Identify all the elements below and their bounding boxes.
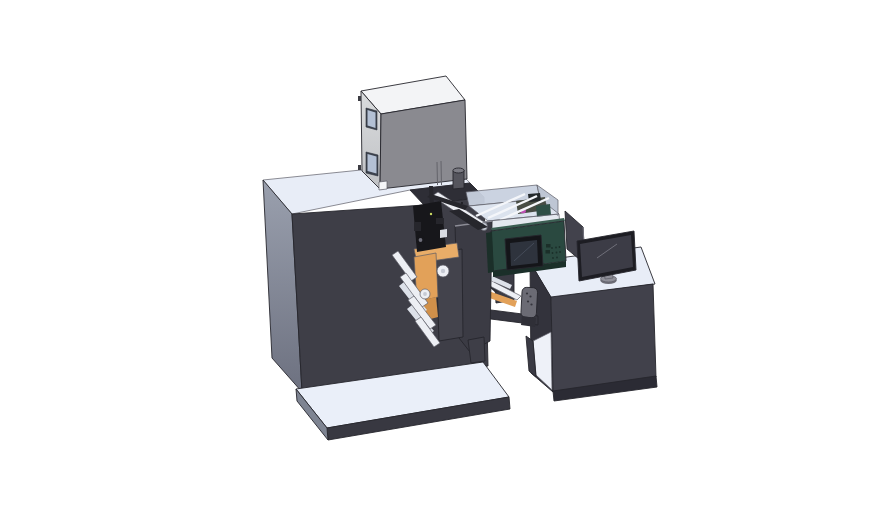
dryer-label-plate: [379, 181, 387, 190]
printhead-module: [414, 222, 421, 231]
unwind-plate: [436, 249, 463, 341]
dryer-window-glass: [368, 110, 376, 128]
rewind-guard-plate: [521, 287, 538, 318]
hmi-button[interactable]: [546, 250, 551, 254]
printhead-module: [436, 218, 444, 224]
dryer-vent-slit: [437, 162, 438, 185]
dryer-vent-slit: [441, 161, 442, 185]
cad-render-page: Isometric 3D CAD rendering of a compact …: [0, 0, 888, 522]
status-led: [430, 213, 432, 215]
hmi-button[interactable]: [546, 244, 551, 248]
exhaust-cylinder-top: [453, 168, 464, 173]
dryer-box: [358, 76, 467, 190]
roller-end-core: [441, 269, 445, 273]
tension-knob-center: [419, 238, 423, 242]
roller-end-core: [423, 292, 427, 296]
printhead-white-part: [440, 229, 447, 238]
hmi-screen: [510, 240, 538, 266]
dryer-hinge-tab: [358, 165, 361, 170]
dryer-window-glass: [368, 154, 377, 174]
dryer-hinge-tab: [358, 96, 361, 101]
screw-dot: [461, 202, 463, 204]
guard-plate-hole: [526, 292, 528, 294]
guard-plate-hole: [530, 303, 532, 305]
guard-plate-hole: [529, 295, 531, 297]
cad-render-canvas: Isometric 3D CAD rendering of a compact …: [0, 0, 888, 522]
guard-plate-hole: [527, 300, 529, 302]
column-foot: [468, 337, 485, 363]
desk-front-face: [551, 284, 656, 392]
